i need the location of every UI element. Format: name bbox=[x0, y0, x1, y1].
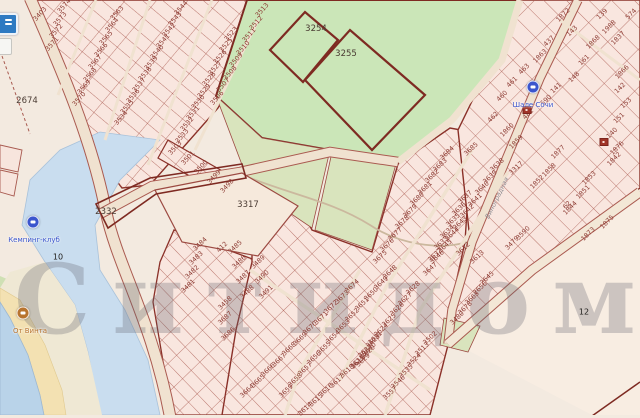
address-number-label: 10 bbox=[53, 253, 63, 262]
poi-label: Шале Сочи bbox=[513, 101, 554, 109]
quarter-label: 3255 bbox=[335, 49, 357, 59]
map-layers-button[interactable] bbox=[0, 13, 18, 35]
quarter-label: 2332 bbox=[95, 207, 117, 217]
quarter-label: 3317 bbox=[237, 200, 259, 210]
poi-marker-club-icon[interactable] bbox=[27, 216, 40, 229]
poi-marker-lodging-icon[interactable] bbox=[527, 81, 540, 94]
poi-label: От Винта bbox=[13, 327, 47, 335]
cadastral-map[interactable]: Ситидом Виноградная 35743573357235713563… bbox=[0, 0, 640, 415]
quarter-label: 2674 bbox=[16, 96, 38, 106]
poi-label: Кемпинг-клуб bbox=[8, 236, 60, 244]
poi-marker-cafe-icon[interactable] bbox=[17, 307, 30, 320]
address-number-label: 12 bbox=[579, 308, 589, 317]
building-icon bbox=[600, 138, 609, 146]
layers-icon bbox=[5, 19, 12, 21]
quarter-label: 3254 bbox=[305, 24, 327, 34]
map-control-button[interactable] bbox=[0, 38, 12, 55]
